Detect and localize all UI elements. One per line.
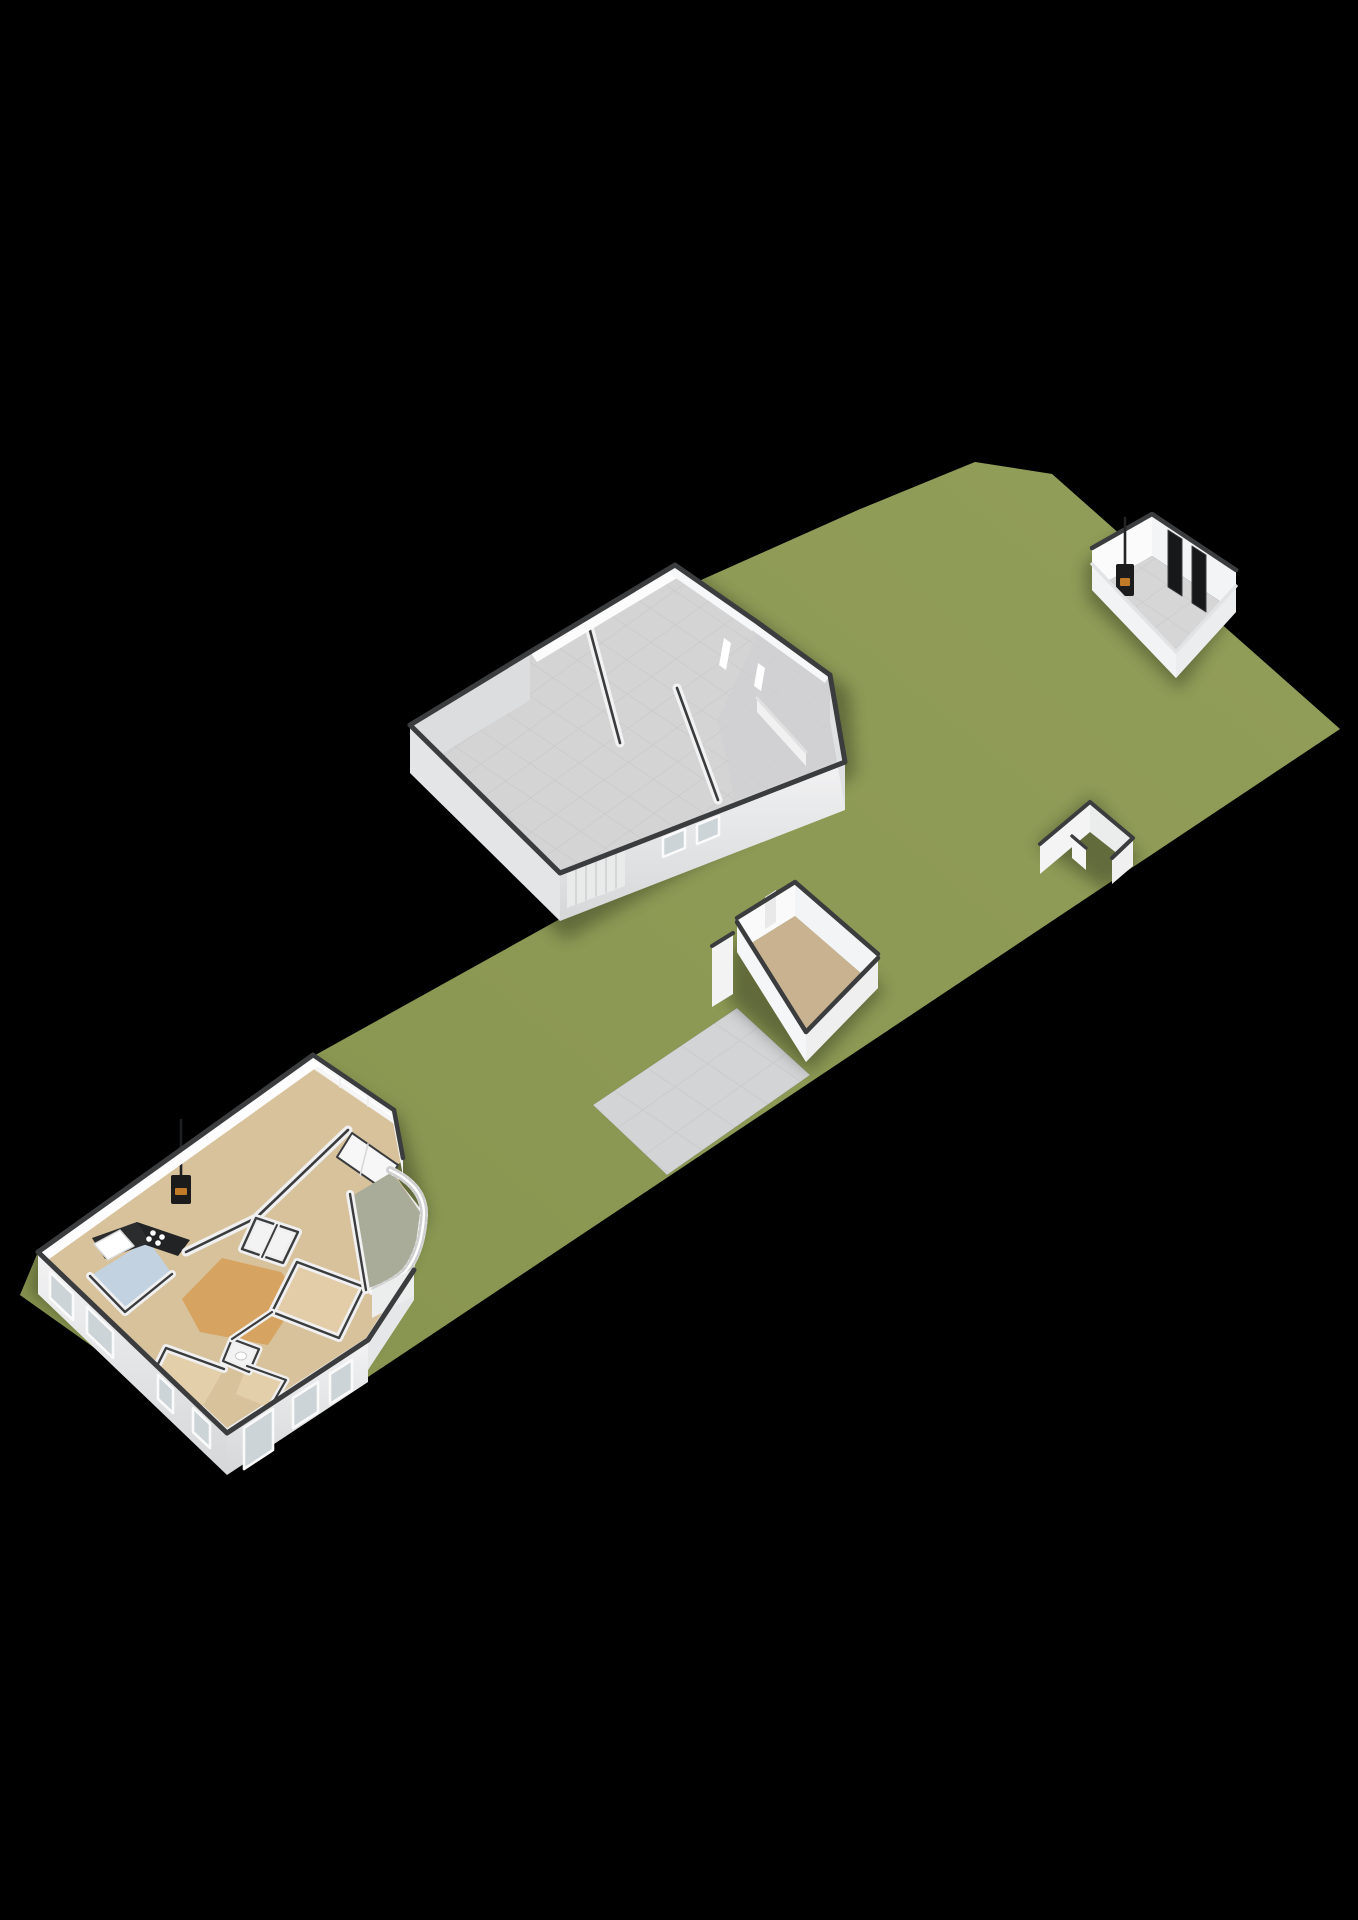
main-house [38,1055,424,1475]
site-plan-svg [0,0,1358,1920]
floorplan-3d-canvas[interactable] [0,0,1358,1920]
toilet-fixture [236,1352,247,1360]
